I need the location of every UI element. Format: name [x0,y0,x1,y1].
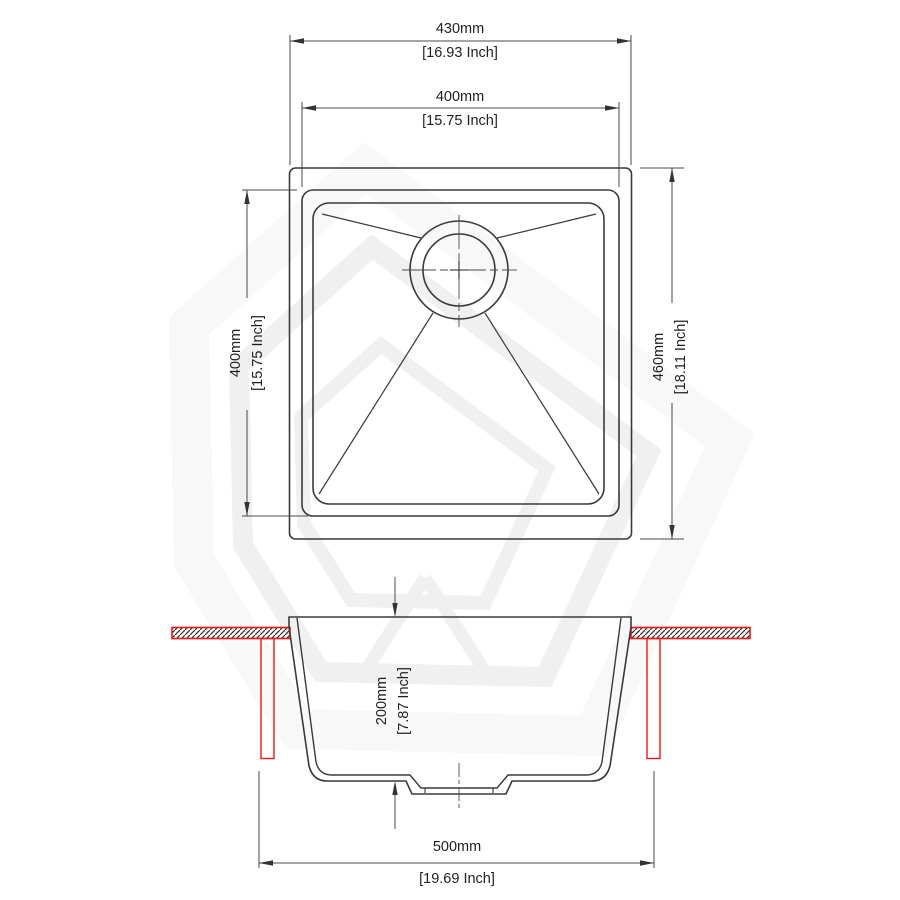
sink-section-inner-profile [297,618,621,788]
dim-bowl-depth-mm: 200mm [374,677,390,725]
countertop-left [172,628,290,639]
arrowhead [617,38,631,43]
arrowhead [290,38,304,43]
dim-bowl-width-inch: [15.75 Inch] [422,113,498,129]
dim-cutout-width-mm: 500mm [433,839,481,855]
dim-overall-length-inch: [18.11 Inch] [673,320,689,395]
arrowhead [605,105,619,110]
dim-cutout-width-inch: [19.69 Inch] [419,871,495,887]
dim-bowl-length-inch: [15.75 Inch] [250,315,266,391]
arrowhead [259,860,273,865]
sink-technical-drawing: 430mm [16.93 Inch] 400mm [15.75 Inch] 40… [0,0,900,900]
dim-overall-width-mm: 430mm [436,21,484,37]
watermark-chevron [367,578,483,668]
arrowhead [669,168,674,182]
arrowhead [640,860,654,865]
countertop-right [631,628,750,639]
drawing-canvas: 430mm [16.93 Inch] 400mm [15.75 Inch] 40… [0,0,900,900]
arrowhead [392,781,397,795]
arrowhead [302,105,316,110]
watermark-logo [189,168,730,736]
dim-bowl-width-mm: 400mm [436,89,484,105]
arrowhead [244,190,249,204]
dim-overall-width-inch: [16.93 Inch] [422,45,498,61]
dim-bowl-length-mm: 400mm [228,329,244,377]
dim-overall-length-mm: 460mm [651,333,667,381]
dim-bowl-depth-inch: [7.87 Inch] [396,667,412,735]
watermark-inner-hexagon [301,345,547,603]
